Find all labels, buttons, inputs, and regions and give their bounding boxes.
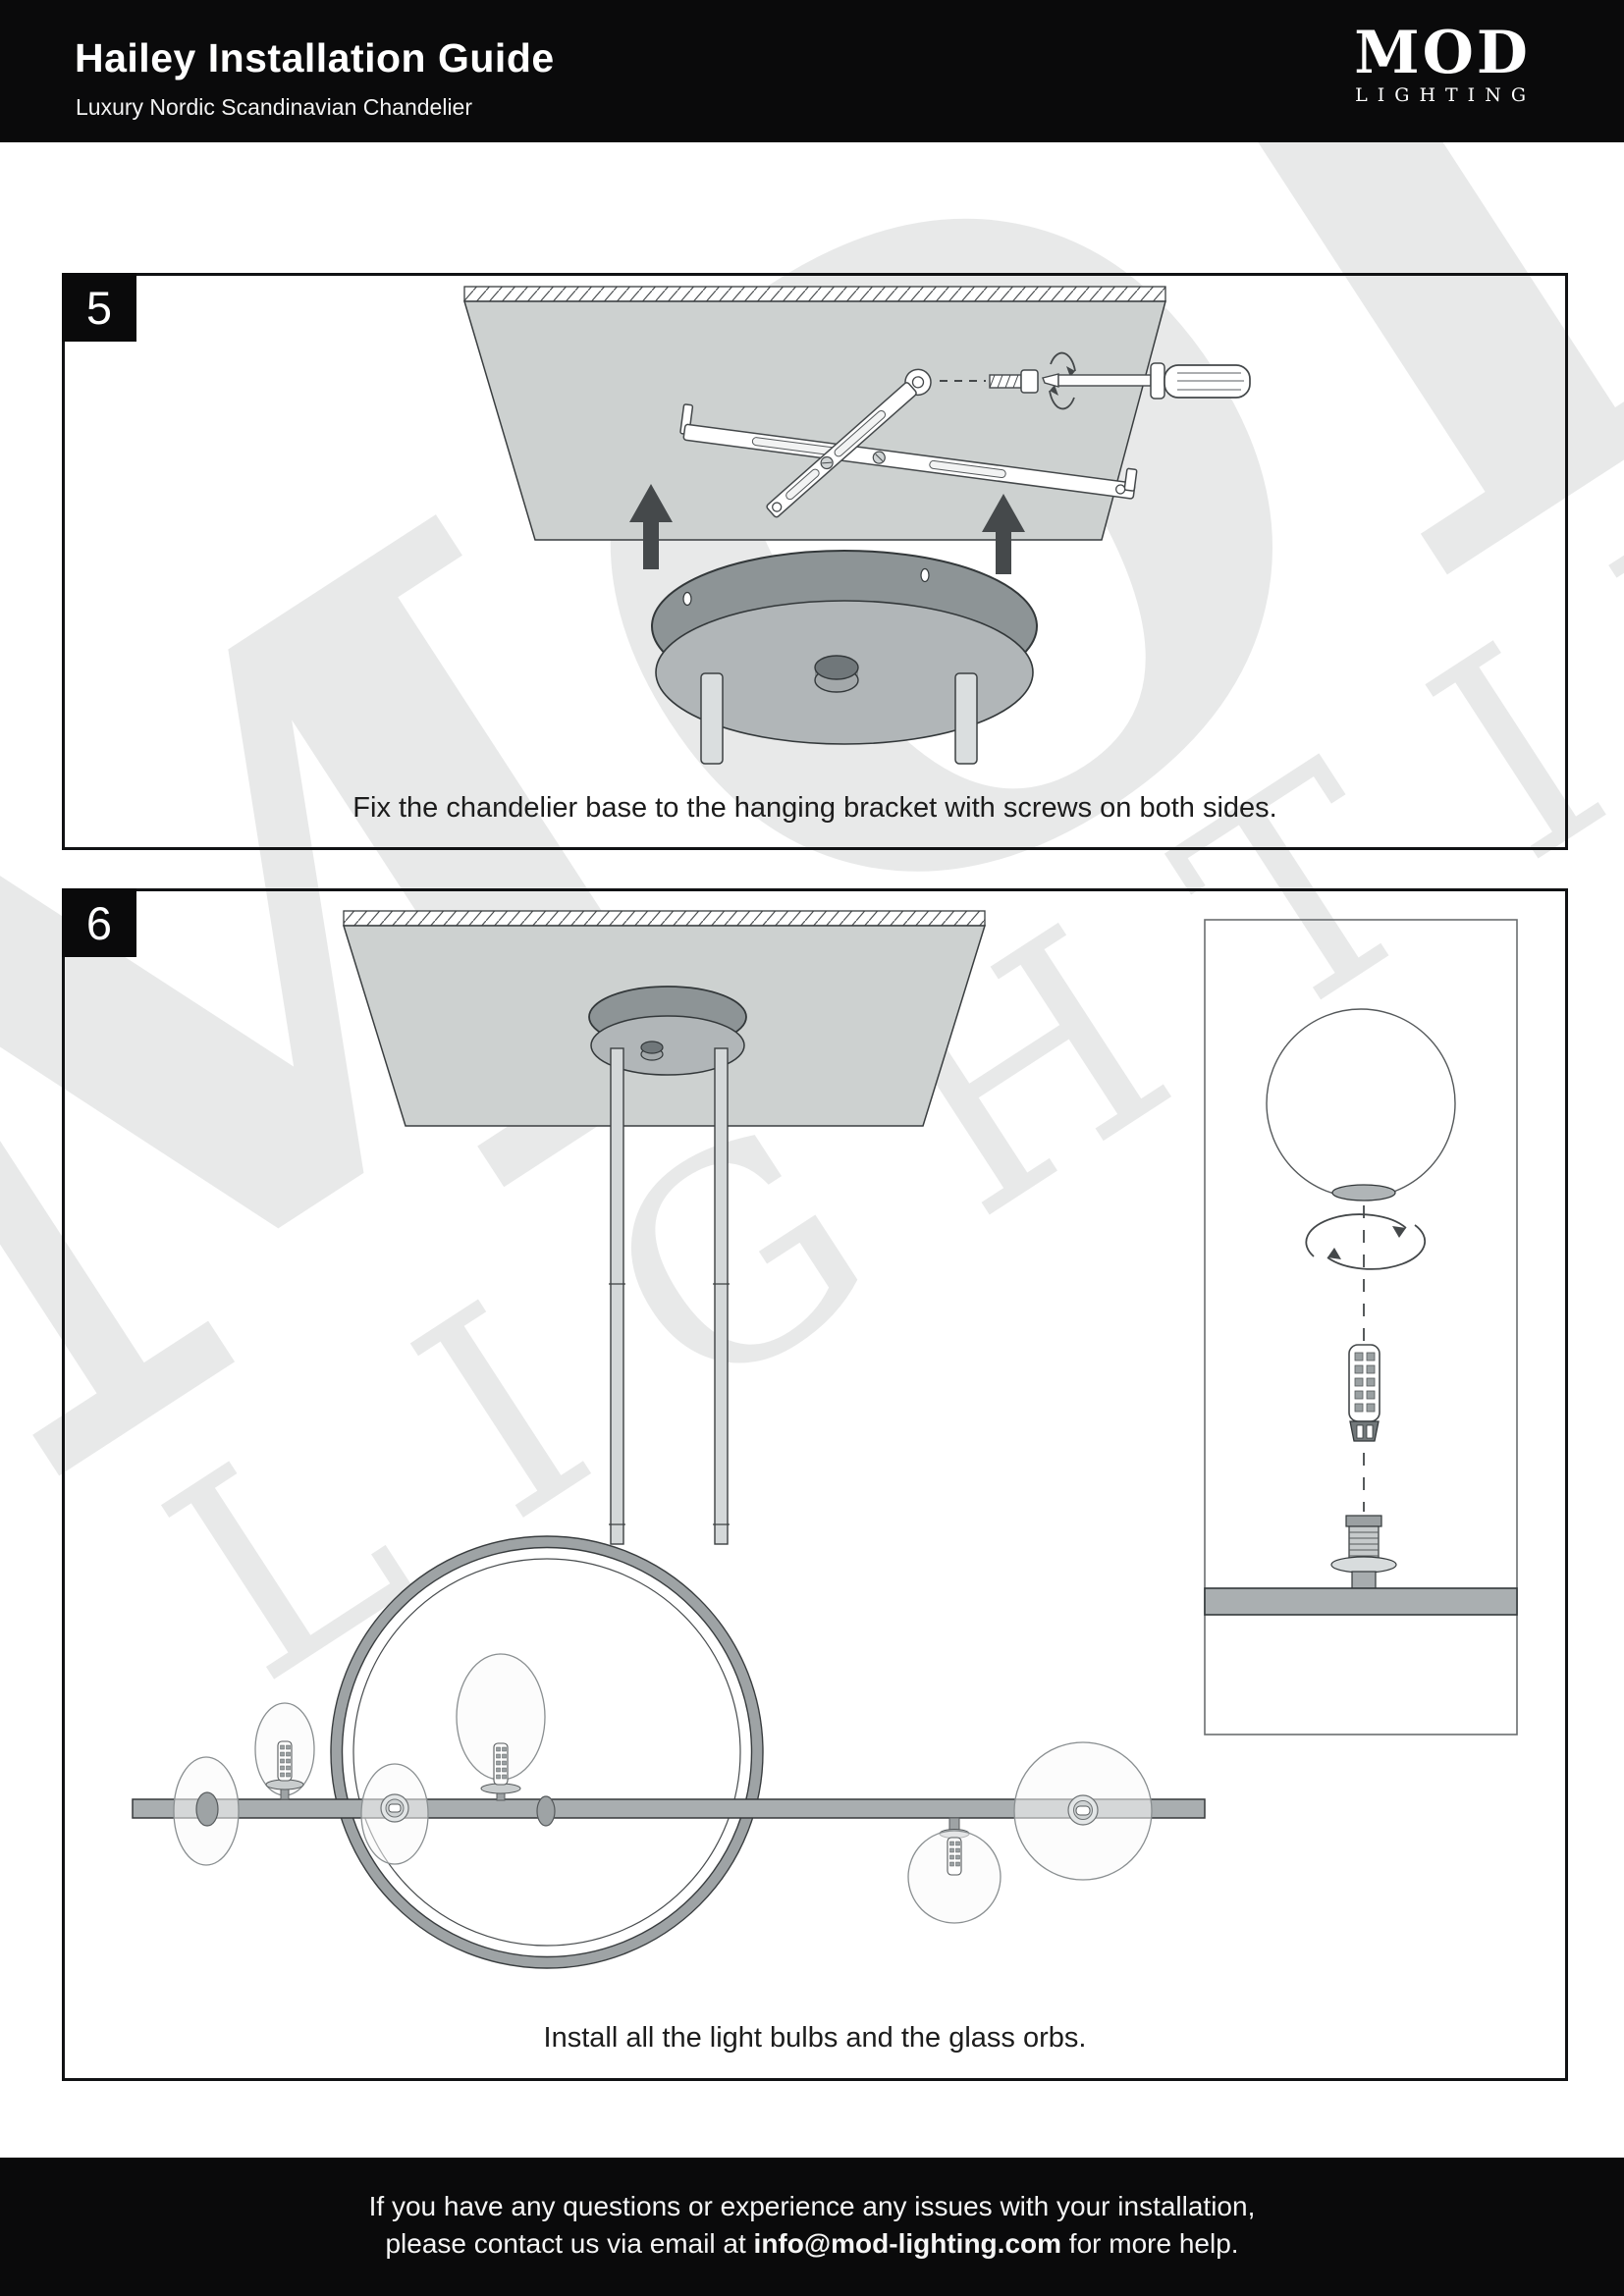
light-bulb-icon	[278, 1741, 292, 1781]
step-6-panel: 6	[62, 888, 1568, 2081]
bar-finial	[196, 1792, 218, 1826]
hanging-rod-right	[955, 673, 977, 764]
light-bulb-icon	[947, 1838, 961, 1875]
footer-line2-prefix: please contact us via email at	[385, 2228, 753, 2259]
step-6-diagram	[65, 891, 1559, 2078]
socket-detail-icon	[1331, 1516, 1396, 1596]
inset-detail-panel	[1205, 920, 1517, 1735]
header-bar: Hailey Installation Guide Luxury Nordic …	[0, 0, 1624, 142]
step-5-number-badge: 5	[62, 273, 136, 342]
light-bulb-detail-icon	[1349, 1345, 1380, 1441]
step-5-panel: 5	[62, 273, 1568, 850]
installation-guide-page: { "header": { "title": "Hailey Installat…	[0, 0, 1624, 2296]
hanging-rod-left	[701, 673, 723, 764]
glass-orb-detail	[1267, 1009, 1455, 1198]
light-bulb-icon	[494, 1743, 508, 1785]
footer-line1: If you have any questions or experience …	[0, 2191, 1624, 2222]
bar-cross-section	[1205, 1588, 1517, 1615]
glass-orbs-group	[174, 1654, 1152, 1923]
ring-frame-icon	[331, 1536, 763, 1968]
step-5-diagram	[65, 276, 1559, 847]
brand-logo-name: MOD	[1349, 24, 1536, 82]
footer-line2-suffix: for more help.	[1061, 2228, 1239, 2259]
step-6-number-badge: 6	[62, 888, 136, 957]
ceiling-panel-icon	[464, 287, 1165, 540]
brand-logo-tagline: LIGHTING	[1355, 84, 1536, 106]
brand-logo: MOD LIGHTING	[1349, 24, 1536, 106]
footer-bar: If you have any questions or experience …	[0, 2158, 1624, 2296]
step-5-caption: Fix the chandelier base to the hanging b…	[65, 792, 1565, 825]
page-subtitle: Luxury Nordic Scandinavian Chandelier	[76, 94, 472, 121]
bar-finial	[537, 1796, 555, 1826]
step-6-caption: Install all the light bulbs and the glas…	[65, 2022, 1565, 2055]
rotate-arrow-icon	[1306, 1214, 1425, 1269]
chandelier-base-icon	[652, 551, 1037, 764]
page-title: Hailey Installation Guide	[75, 35, 555, 81]
footer-line2: please contact us via email at info@mod-…	[0, 2228, 1624, 2260]
footer-email[interactable]: info@mod-lighting.com	[754, 2228, 1061, 2259]
